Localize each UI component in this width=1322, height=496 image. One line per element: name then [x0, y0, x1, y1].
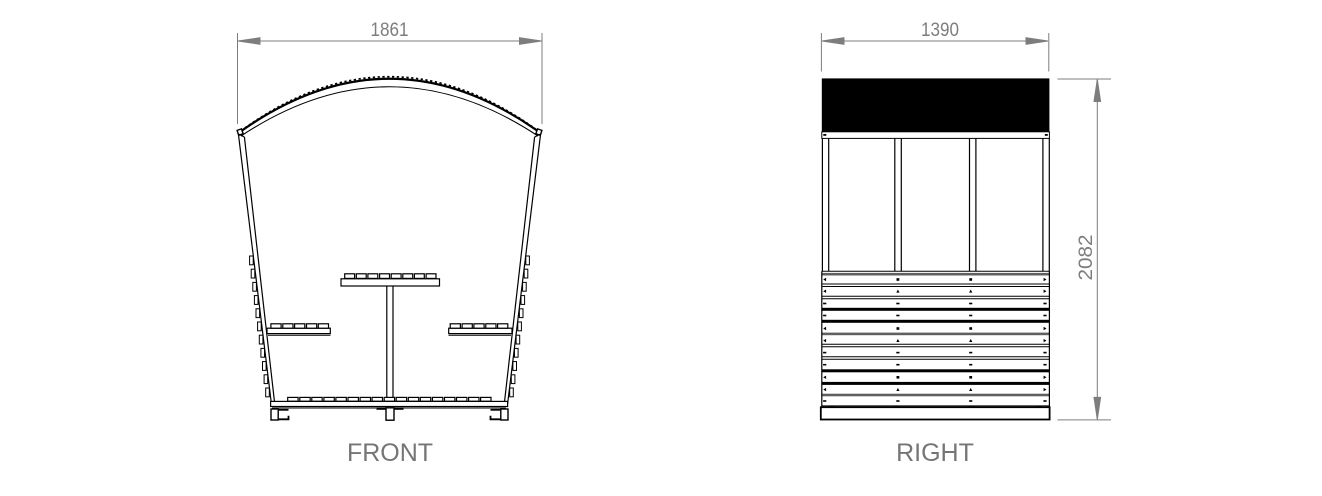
svg-text:RIGHT: RIGHT: [896, 439, 974, 467]
svg-text:1861: 1861: [371, 20, 409, 41]
svg-text:2082: 2082: [1076, 235, 1097, 281]
svg-text:1390: 1390: [921, 20, 959, 41]
svg-text:FRONT: FRONT: [347, 439, 433, 467]
